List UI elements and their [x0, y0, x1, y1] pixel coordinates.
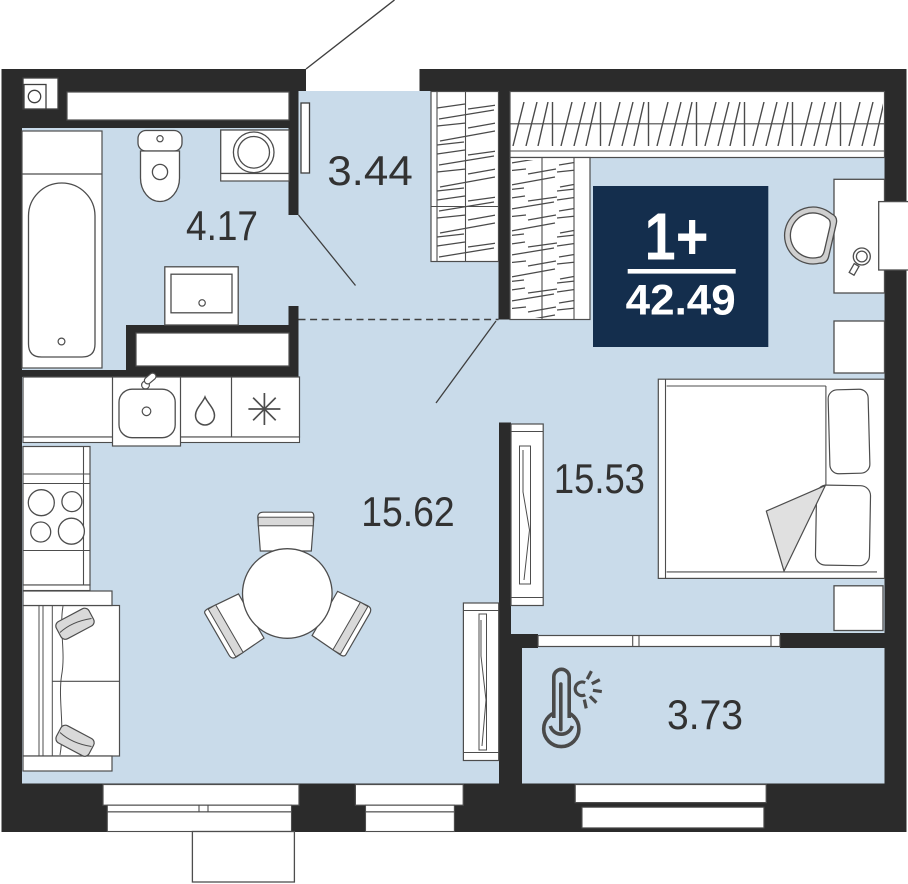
svg-text:42.49: 42.49	[626, 277, 736, 325]
svg-text:3.73: 3.73	[667, 691, 743, 738]
svg-text:15.53: 15.53	[554, 455, 645, 502]
svg-text:3.44: 3.44	[327, 147, 413, 194]
svg-text:4.17: 4.17	[186, 202, 258, 249]
svg-text:1+: 1+	[645, 200, 709, 275]
svg-text:15.62: 15.62	[361, 488, 454, 535]
